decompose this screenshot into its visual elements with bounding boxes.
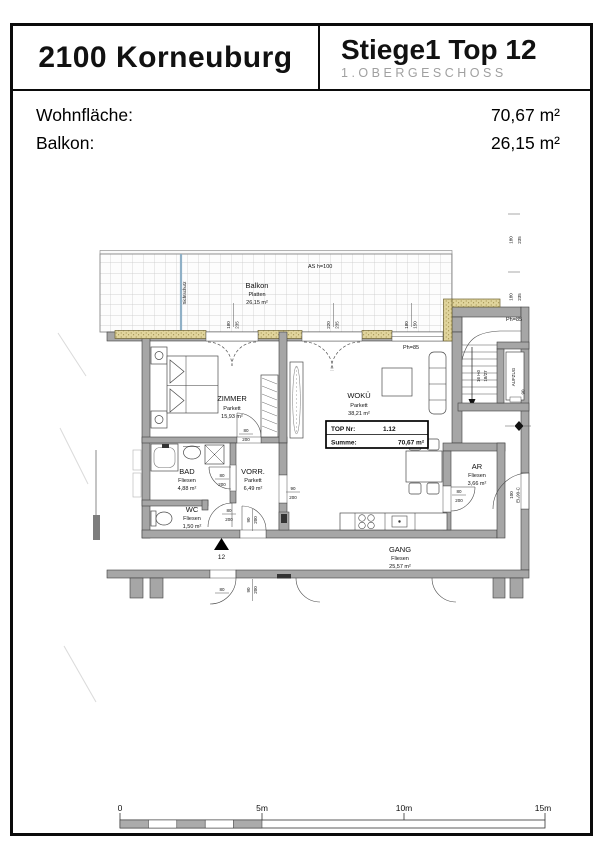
- title-block: 2100 Korneuburg Stiege1 Top 12 1.OBERGES…: [13, 26, 590, 91]
- page-frame: 2100 Korneuburg Stiege1 Top 12 1.OBERGES…: [10, 23, 593, 836]
- title-location-cell: 2100 Korneuburg: [13, 26, 320, 89]
- unit-title: Stiege1 Top 12: [341, 35, 590, 64]
- plan-sheet: Sichtschutz AS h=100 Balkon Platten 26,1…: [0, 0, 603, 842]
- summary-value: 26,15 m²: [491, 133, 560, 154]
- summary-row-wohnflaeche: Wohnfläche: 70,67 m²: [13, 105, 590, 126]
- summary-label: Wohnfläche:: [36, 105, 133, 126]
- floor-subtitle: 1.OBERGESCHOSS: [341, 66, 590, 80]
- area-summary: Wohnfläche: 70,67 m² Balkon: 26,15 m²: [13, 94, 590, 154]
- title-unit-cell: Stiege1 Top 12 1.OBERGESCHOSS: [320, 26, 590, 89]
- summary-row-balkon: Balkon: 26,15 m²: [13, 133, 590, 154]
- summary-label: Balkon:: [36, 133, 94, 154]
- summary-value: 70,67 m²: [491, 105, 560, 126]
- location-title: 2100 Korneuburg: [38, 41, 292, 75]
